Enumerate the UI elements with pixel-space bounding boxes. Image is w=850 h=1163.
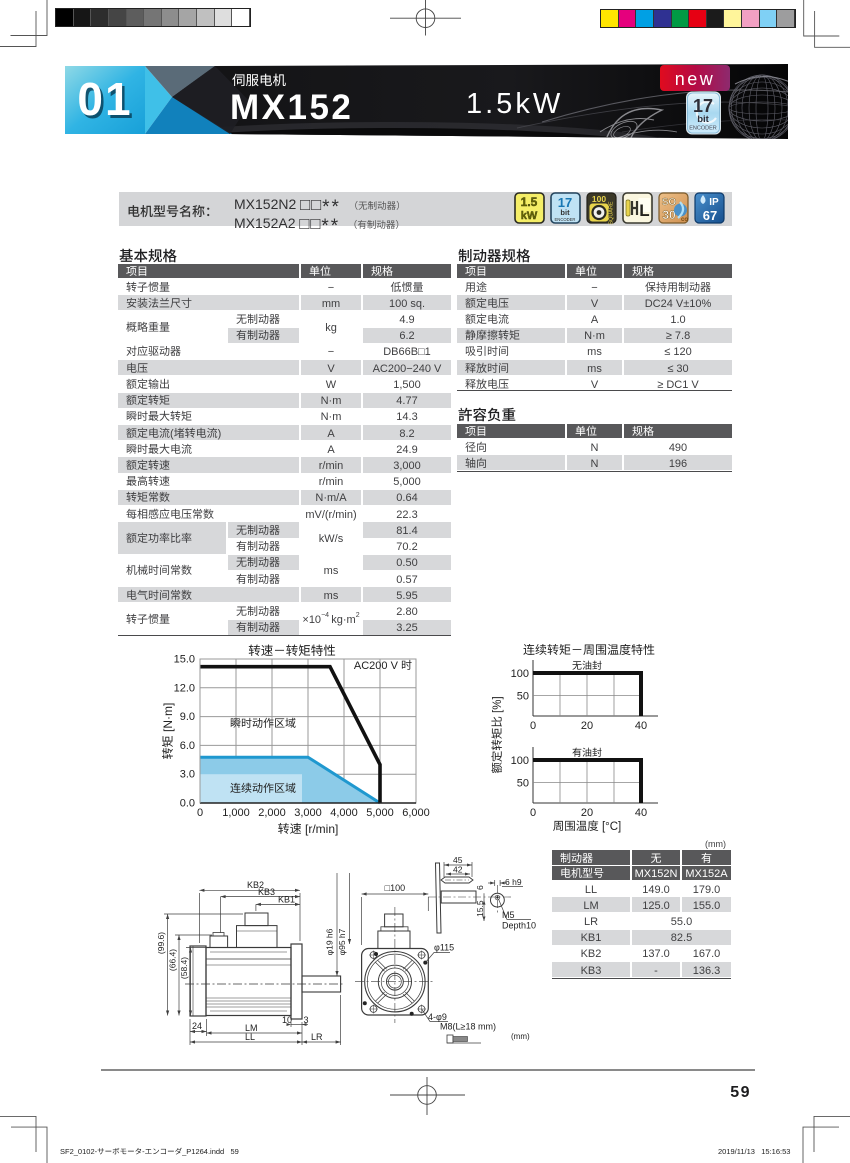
svg-text:40: 40 <box>635 804 647 820</box>
svg-text:ENCODER: ENCODER <box>555 217 576 223</box>
svg-text:42: 42 <box>453 864 463 876</box>
svg-text:连续转矩－周围温度特性: 连续转矩－周围温度特性 <box>523 644 655 658</box>
svg-text:50: 50 <box>517 775 529 791</box>
svg-text:6: 6 <box>474 885 486 890</box>
svg-text:new: new <box>675 65 716 91</box>
svg-text:100: 100 <box>511 752 529 768</box>
svg-text:01: 01 <box>77 63 132 129</box>
svg-text:4,000: 4,000 <box>330 804 358 820</box>
svg-text:ENCODER: ENCODER <box>689 124 717 132</box>
svg-text:100: 100 <box>511 665 529 681</box>
svg-text:9.0: 9.0 <box>180 708 195 724</box>
svg-text:(99.6): (99.6) <box>155 932 167 954</box>
svg-text:67: 67 <box>703 205 717 224</box>
svg-text:周围温度 [°C]: 周围温度 [°C] <box>553 818 622 834</box>
svg-text:(mm): (mm) <box>511 1031 530 1042</box>
svg-text:AC200 V 时: AC200 V 时 <box>354 657 412 673</box>
svg-text:□100: □100 <box>385 881 405 894</box>
svg-text:连续动作区域: 连续动作区域 <box>230 780 296 796</box>
svg-text:kW: kW <box>521 207 538 223</box>
svg-text:100: 100 <box>592 193 606 205</box>
svg-text:24: 24 <box>192 1019 202 1032</box>
svg-text:(58.4): (58.4) <box>178 957 190 979</box>
svg-text:12.0: 12.0 <box>174 679 195 695</box>
svg-text:0: 0 <box>197 804 203 820</box>
svg-text:2,000: 2,000 <box>258 804 286 820</box>
svg-text:5,000: 5,000 <box>366 804 394 820</box>
svg-text:40: 40 <box>635 717 647 733</box>
svg-text:30: 30 <box>662 206 676 223</box>
svg-text:转速 [r/min]: 转速 [r/min] <box>278 820 339 837</box>
svg-text:0.0: 0.0 <box>180 795 195 811</box>
svg-text:3,000: 3,000 <box>294 804 322 820</box>
svg-text:0: 0 <box>530 804 536 820</box>
svg-text:φ19 h6: φ19 h6 <box>324 928 336 955</box>
svg-text:瞬时动作区域: 瞬时动作区域 <box>230 715 296 731</box>
svg-text:无油封: 无油封 <box>572 657 602 672</box>
svg-text:额定转矩比 [%]: 额定转矩比 [%] <box>490 696 505 773</box>
svg-text:MX152: MX152 <box>230 79 353 130</box>
svg-text:15.0: 15.0 <box>174 651 195 667</box>
svg-text:0: 0 <box>530 717 536 733</box>
svg-text:Depth10: Depth10 <box>502 919 536 932</box>
svg-text:1,000: 1,000 <box>222 804 250 820</box>
svg-text:6,000: 6,000 <box>402 804 430 820</box>
svg-text:φ115: φ115 <box>434 941 454 954</box>
svg-text:(66.4): (66.4) <box>167 949 179 971</box>
svg-text:15.5: 15.5 <box>474 900 486 917</box>
svg-text:3.0: 3.0 <box>180 766 195 782</box>
svg-text:有油封: 有油封 <box>572 744 602 759</box>
svg-text:M8(L≥18 mm): M8(L≥18 mm) <box>440 1020 496 1033</box>
svg-text:KB3: KB3 <box>258 885 275 898</box>
svg-text:co: co <box>681 214 688 223</box>
svg-text:10: 10 <box>282 1013 292 1026</box>
svg-text:3: 3 <box>304 1013 309 1026</box>
svg-text:KB1: KB1 <box>278 893 295 906</box>
svg-text:φ95 h7: φ95 h7 <box>336 928 348 955</box>
svg-text:6.0: 6.0 <box>180 737 195 753</box>
svg-text:转矩 [N·m]: 转矩 [N·m] <box>159 703 176 760</box>
svg-text:20: 20 <box>581 717 593 733</box>
svg-text:L: L <box>639 196 649 221</box>
svg-text:转速－转矩特性: 转速－转矩特性 <box>248 644 336 659</box>
svg-text:LL: LL <box>245 1030 255 1043</box>
svg-text:50: 50 <box>517 688 529 704</box>
svg-text:1.5kW: 1.5kW <box>466 80 563 122</box>
svg-text:LR: LR <box>311 1030 323 1043</box>
